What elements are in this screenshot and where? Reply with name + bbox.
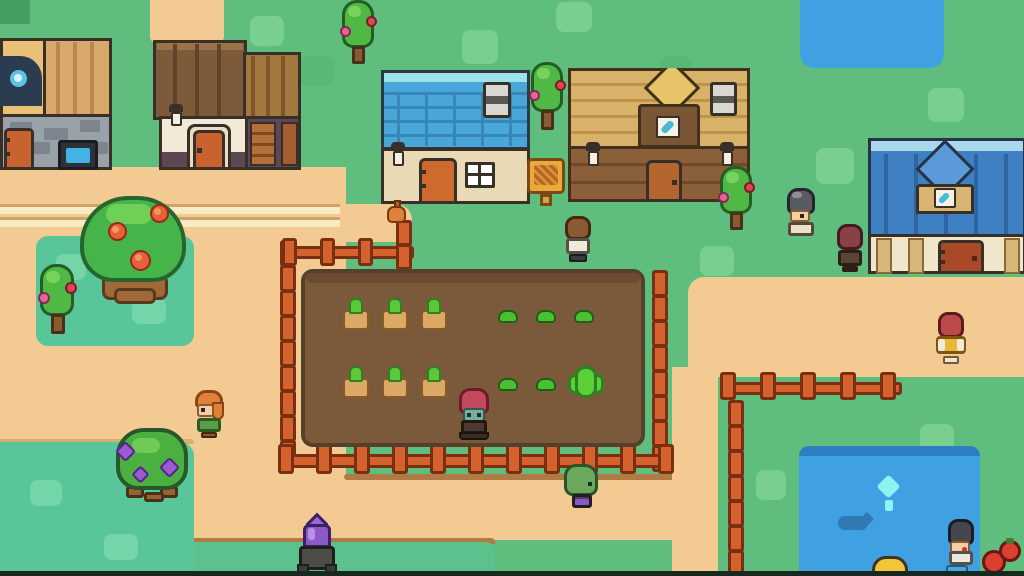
building-house[interactable] (153, 40, 303, 170)
fence-post (280, 390, 296, 417)
berry-tree[interactable] (529, 62, 567, 134)
apple-shine (135, 254, 142, 261)
door[interactable] (4, 128, 34, 170)
eye (800, 214, 804, 218)
canopy-highlight (106, 204, 152, 224)
sprout (349, 366, 363, 382)
eye (467, 413, 471, 417)
shingle-line-v (397, 94, 400, 146)
body (949, 551, 973, 565)
roof-side-slat (266, 56, 270, 118)
npc-gold-girl[interactable] (934, 312, 968, 366)
npc-fisher[interactable] (944, 519, 978, 576)
npc-farmhand[interactable] (561, 216, 595, 266)
annex-door[interactable] (281, 122, 298, 166)
lantern-body (588, 151, 599, 166)
fence-post (728, 500, 744, 527)
fence-post (652, 395, 668, 422)
fence-post (728, 525, 744, 552)
legs (943, 356, 959, 364)
door-hinge (422, 170, 426, 174)
fence-post (320, 238, 335, 266)
berry (38, 292, 50, 304)
fence-post (728, 425, 744, 452)
berry (555, 80, 566, 91)
berry (340, 26, 351, 37)
berry (65, 282, 77, 294)
tomato-stem (1006, 538, 1014, 544)
sprout (536, 378, 556, 391)
door-hinge (6, 152, 10, 156)
notice-sign[interactable] (527, 158, 567, 208)
sand (150, 0, 224, 44)
fence-post (354, 444, 370, 474)
sprout (349, 298, 363, 314)
farm-fence-bottom (278, 444, 680, 478)
farm-fence-stub (396, 220, 414, 270)
fence-post (728, 400, 744, 427)
grass-patch (556, 2, 592, 32)
roof-panel-line (1004, 154, 1008, 234)
fence-post (430, 444, 446, 474)
farm-fence-right (652, 270, 672, 470)
stair-line (252, 154, 274, 157)
berry (529, 90, 540, 101)
lantern-body (393, 151, 404, 166)
grass-patch (700, 246, 734, 276)
edge (0, 571, 1024, 576)
sprout (388, 298, 402, 314)
leaf-head (564, 464, 598, 496)
roof-panel-line (884, 154, 888, 234)
fence-post (652, 370, 668, 397)
berry (718, 192, 729, 203)
crop-cabbage[interactable] (568, 366, 604, 400)
door-hinge (6, 138, 10, 142)
fence-post (720, 372, 736, 400)
fence-post (392, 444, 408, 474)
body (838, 250, 862, 266)
eye (588, 482, 592, 486)
roof-plank-line (56, 42, 60, 114)
fence-post (652, 420, 668, 447)
fence-post (880, 372, 896, 400)
fence-post (800, 372, 816, 400)
canopy-highlight (348, 6, 361, 17)
face (197, 404, 214, 417)
grass-patch (928, 88, 964, 122)
roof-plank-line (73, 42, 77, 114)
bag-body (387, 206, 406, 223)
grass-patch-dark (300, 56, 334, 86)
planter-step (114, 288, 156, 304)
apple-shine (154, 208, 161, 215)
stair-line (252, 132, 274, 135)
npc-elder[interactable] (784, 188, 818, 240)
dark-corner-patch (0, 0, 30, 24)
roof-plank-line (195, 44, 199, 118)
fence-post (468, 444, 484, 474)
lantern-cap (391, 142, 405, 151)
sign-panel (534, 165, 558, 185)
pillar (908, 238, 924, 274)
cabbage-center (575, 366, 597, 398)
lantern-cap (169, 104, 183, 112)
fence-post (282, 238, 297, 266)
fence-post (280, 365, 296, 392)
roof-plank-line (90, 42, 94, 114)
crop-sprouts-row1[interactable] (498, 308, 598, 330)
berry-tree[interactable] (38, 264, 78, 338)
feet (201, 432, 217, 438)
game-viewport (0, 0, 1024, 576)
door[interactable] (419, 158, 457, 204)
shingle-line-v (453, 94, 456, 146)
feet (842, 266, 858, 272)
roof-side-slat (281, 56, 285, 118)
water (800, 0, 944, 68)
fence-post (652, 320, 668, 347)
eye (477, 413, 481, 417)
sand-below-farm (340, 478, 692, 540)
door-knob (972, 256, 977, 261)
roof (153, 40, 247, 120)
door-hinge (422, 184, 426, 188)
window-mullion-h (465, 173, 495, 176)
roof-side-slat (251, 56, 255, 118)
building-blue-house[interactable] (868, 138, 1024, 274)
screen-bottom-edge (0, 571, 1024, 576)
trunk (51, 314, 65, 334)
shingle-line-v (425, 94, 428, 146)
chimney-band (486, 96, 508, 104)
fence-post (652, 295, 668, 322)
grass-patch (816, 148, 854, 184)
roof-panel-line (974, 154, 978, 234)
sprout (498, 310, 518, 323)
roof-ridge (384, 73, 527, 82)
forge-orb-core (14, 74, 22, 82)
fence-post (728, 475, 744, 502)
fence-post (280, 340, 296, 367)
npc-farmer-goblin[interactable] (456, 388, 492, 442)
farm-fence-left (280, 240, 300, 468)
lantern-cap (586, 142, 600, 151)
sprout (427, 298, 441, 314)
sprout (574, 310, 594, 323)
hair (938, 312, 964, 338)
crop-sprouts-row2[interactable] (498, 376, 560, 398)
npc-sprout-buddy[interactable] (562, 462, 600, 522)
grass-patch (104, 534, 138, 560)
crystal-statue[interactable] (294, 516, 340, 576)
stone-block (80, 120, 100, 132)
npc-redhead[interactable] (192, 390, 226, 442)
crystal-shine (308, 528, 315, 540)
roof-plank-line (217, 44, 221, 118)
hair-streak (792, 192, 802, 198)
fence-post (620, 444, 636, 474)
roof-planks (42, 38, 112, 118)
sand (340, 478, 692, 540)
body (197, 418, 221, 432)
chimney-band (713, 96, 734, 103)
roof-highlight (157, 43, 243, 50)
fence-post (316, 444, 332, 474)
fence-post (280, 415, 296, 442)
door-hinge (941, 250, 945, 254)
sign-leg (540, 194, 552, 206)
berry-tree[interactable] (718, 166, 756, 236)
fence-rail (284, 246, 414, 259)
pillar (1004, 238, 1020, 274)
door-knob (672, 180, 677, 185)
sprout (498, 378, 518, 391)
lantern-cap (720, 142, 734, 151)
canopy-highlight (537, 68, 550, 79)
fence-post (652, 345, 668, 372)
crop-mounds-row1[interactable] (343, 298, 453, 332)
pants (569, 254, 587, 262)
crop-mounds-row2[interactable] (343, 366, 453, 400)
hair (565, 216, 591, 240)
door-hinge (941, 260, 945, 264)
fence-post (728, 450, 744, 477)
canopy-highlight (726, 172, 739, 183)
stair-line (252, 143, 274, 146)
grass-patch (30, 480, 62, 506)
flower-bush[interactable] (114, 428, 194, 506)
berry-tree[interactable] (340, 0, 378, 66)
stone-block (44, 128, 68, 140)
eye (201, 408, 205, 412)
soil-shade (306, 273, 640, 283)
trunk (541, 110, 554, 130)
hair (837, 224, 863, 250)
orange-bag[interactable] (387, 200, 407, 224)
sprout (427, 366, 441, 382)
apple (130, 250, 151, 271)
door[interactable] (938, 240, 984, 274)
berry (744, 182, 755, 193)
npc-maroon[interactable] (834, 224, 866, 272)
canopy-highlight (132, 438, 160, 453)
body (788, 222, 814, 236)
fence-post (280, 290, 296, 317)
trunk (730, 212, 743, 230)
pillar (876, 238, 892, 274)
sand-top-path (150, 0, 224, 44)
monitor-screen (66, 148, 90, 163)
fence-post (506, 444, 522, 474)
canopy-highlight (46, 271, 60, 283)
body (566, 238, 590, 254)
door-knob (197, 148, 202, 153)
fence-post (658, 444, 674, 474)
grass-patch (462, 30, 498, 64)
building-smithy[interactable] (0, 38, 112, 170)
fence-post (358, 238, 373, 266)
fence-post (760, 372, 776, 400)
lantern-body (722, 151, 733, 166)
sprout (388, 366, 402, 382)
fence-post (652, 270, 668, 297)
sand-band (688, 277, 1024, 377)
bush-foot (144, 492, 164, 502)
lantern-body (171, 112, 182, 126)
fence-post (278, 444, 294, 474)
sleeve (957, 339, 964, 351)
sprout (536, 310, 556, 323)
sleeve (938, 339, 945, 351)
pond-fence (720, 372, 912, 576)
fence-post (280, 315, 296, 342)
building-blue-shop[interactable] (381, 70, 530, 204)
fence-post (396, 244, 412, 270)
berry (366, 16, 377, 27)
belt (575, 499, 589, 505)
apple-shine (112, 226, 119, 233)
skirt (459, 432, 489, 440)
water-top-right (800, 0, 944, 68)
fence-post (840, 372, 856, 400)
apple-tree[interactable] (78, 196, 190, 308)
trunk (352, 46, 365, 64)
fence-post (544, 444, 560, 474)
